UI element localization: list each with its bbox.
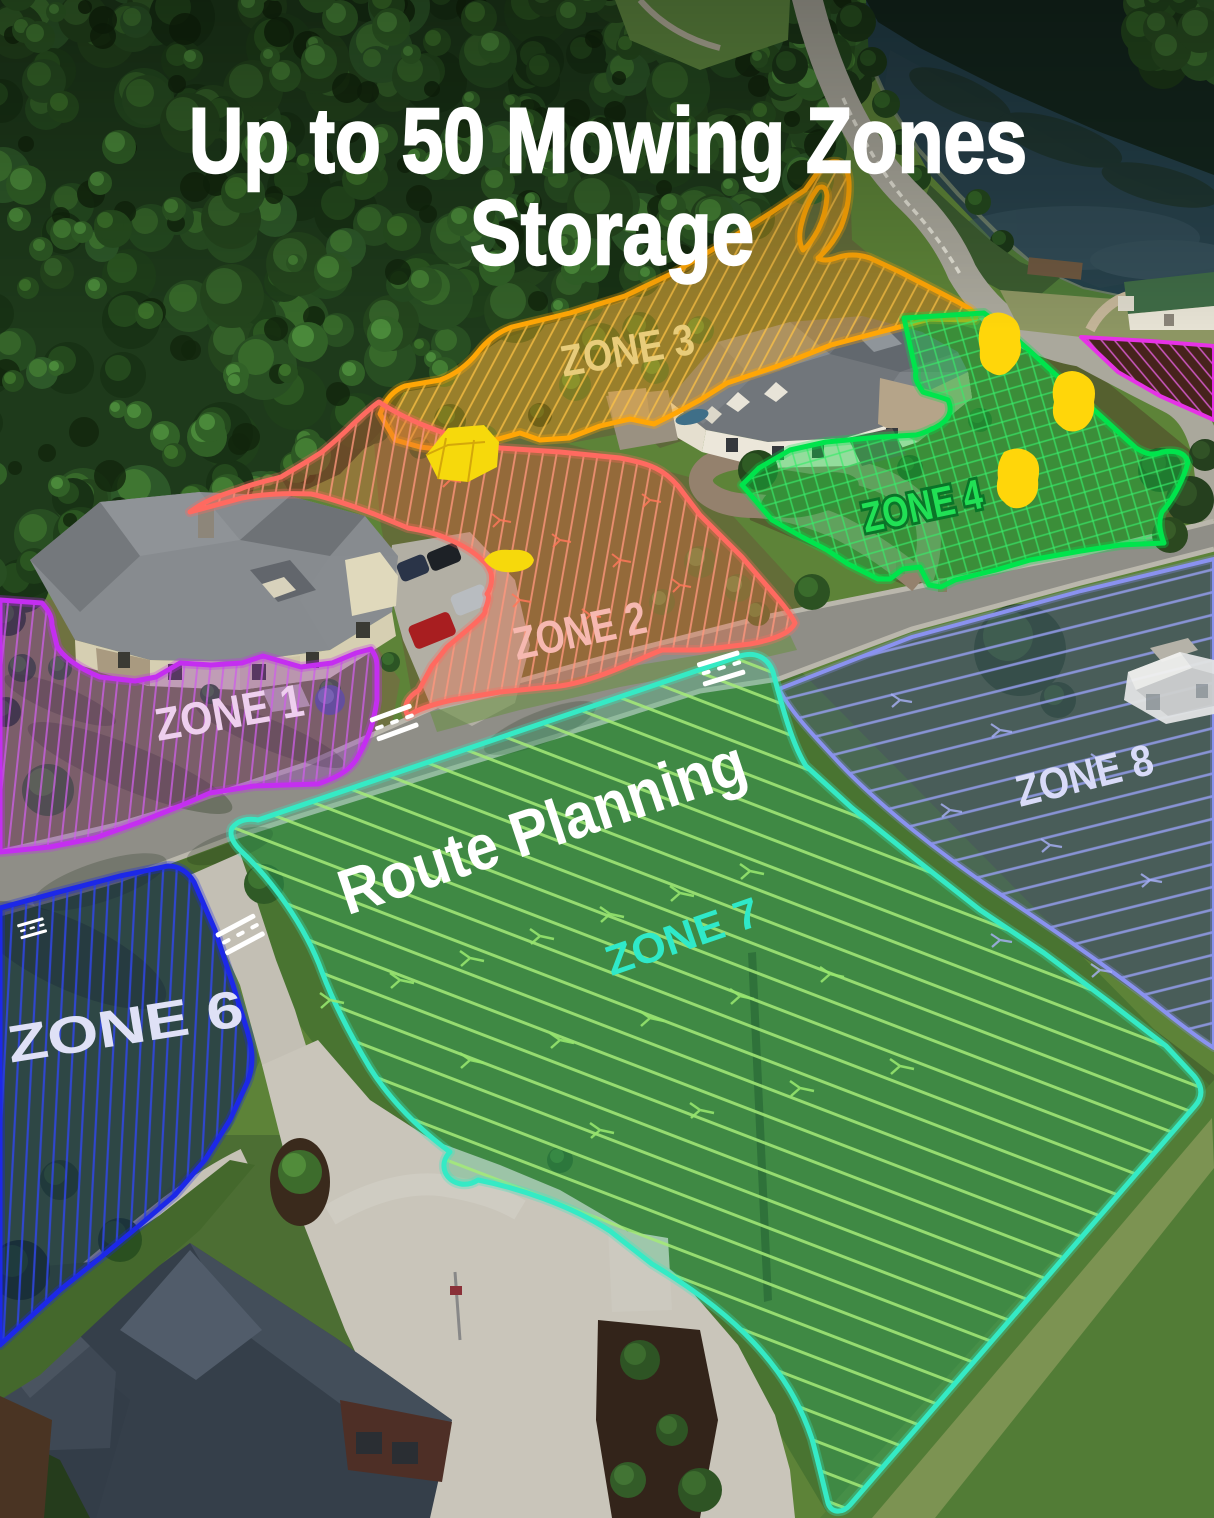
svg-text:Up to 50 Mowing Zones: Up to 50 Mowing Zones — [189, 90, 1027, 192]
svg-text:Storage: Storage — [470, 182, 754, 284]
